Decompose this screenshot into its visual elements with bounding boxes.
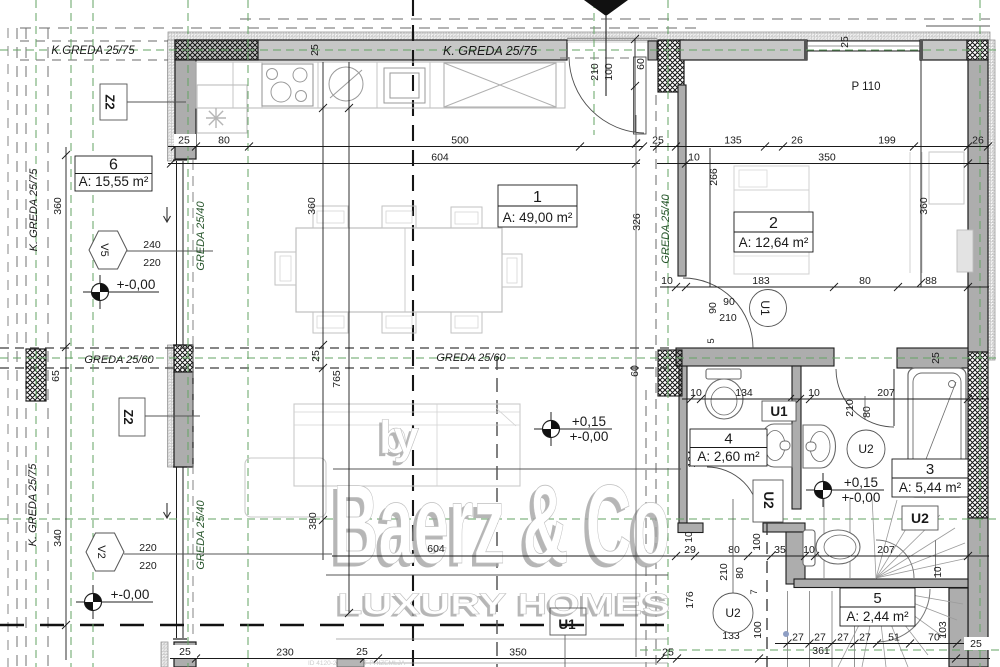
svg-text:266: 266 [708,168,720,186]
svg-text:350: 350 [818,152,836,164]
svg-text:134: 134 [735,387,753,399]
svg-text:LUXURY HOMES: LUXURY HOMES [337,588,670,621]
svg-text:26: 26 [791,135,803,147]
svg-text:10: 10 [688,152,700,164]
svg-text:2: 2 [769,215,778,232]
svg-text:60: 60 [629,365,641,377]
svg-text:U2: U2 [911,510,929,526]
svg-text:380: 380 [307,512,319,530]
svg-text:26: 26 [972,135,984,147]
svg-text:65: 65 [50,370,62,382]
svg-text:326: 326 [631,213,643,231]
svg-text:207: 207 [877,387,895,399]
svg-text:176: 176 [684,591,696,609]
svg-text:1: 1 [533,189,542,206]
svg-text:A: 2,60 m²: A: 2,60 m² [697,449,760,464]
svg-text:88: 88 [925,275,937,287]
svg-text:60: 60 [635,58,647,70]
svg-text:5: 5 [873,590,881,607]
svg-text:Z2: Z2 [121,409,136,424]
svg-text:80: 80 [728,544,740,556]
svg-text:207: 207 [877,544,895,556]
svg-text:U2: U2 [761,491,776,508]
svg-text:25: 25 [310,350,322,362]
svg-text:10: 10 [808,387,820,399]
svg-text:25: 25 [970,638,982,650]
svg-text:25: 25 [178,135,190,147]
svg-text:25: 25 [839,36,851,48]
svg-text:35: 35 [774,544,786,556]
svg-text:360: 360 [306,197,318,215]
svg-text:210: 210 [719,312,737,324]
svg-text:90: 90 [723,296,735,308]
svg-text:V5: V5 [98,243,110,256]
svg-text:135: 135 [724,135,742,147]
svg-text:K. GREDA 25/75: K. GREDA 25/75 [443,44,537,58]
svg-text:27: 27 [792,632,804,644]
svg-text:K. GREDA 25/75: K. GREDA 25/75 [28,168,40,252]
svg-text:604: 604 [431,152,449,164]
svg-text:A: 49,00 m²: A: 49,00 m² [503,210,573,225]
svg-text:+-0,00: +-0,00 [111,587,150,602]
svg-text:183: 183 [752,275,770,287]
svg-text:230: 230 [276,647,294,659]
svg-text:A: 2,44 m²: A: 2,44 m² [846,609,909,624]
svg-text:25: 25 [179,646,191,658]
svg-text:240: 240 [143,239,161,251]
svg-text:by: by [379,411,419,463]
svg-text:350: 350 [509,647,527,659]
svg-text:Z2: Z2 [103,94,118,109]
svg-text:+0,15: +0,15 [844,475,878,490]
svg-text:A: 15,55 m²: A: 15,55 m² [79,174,149,189]
svg-text:361: 361 [812,645,830,657]
svg-text:10: 10 [933,566,944,578]
svg-text:765: 765 [331,370,343,388]
svg-text:GREDA 25/40: GREDA 25/40 [660,193,672,263]
svg-text:25: 25 [356,646,368,658]
svg-text:6: 6 [109,157,118,174]
svg-text:U2: U2 [858,442,874,456]
svg-text:GREDA 25/60: GREDA 25/60 [436,352,506,364]
svg-text:340: 340 [52,529,64,547]
svg-text:80: 80 [861,406,873,418]
svg-text:25: 25 [652,135,664,147]
svg-text:210: 210 [844,399,856,417]
svg-text:80: 80 [218,135,230,147]
svg-text:U1: U1 [770,404,788,419]
svg-text:27: 27 [814,632,826,644]
svg-text:K.GREDA 25/75: K.GREDA 25/75 [51,45,135,57]
svg-text:K. GREDA 25/75: K. GREDA 25/75 [27,463,39,547]
svg-text:25: 25 [309,44,321,56]
svg-text:10: 10 [803,544,815,556]
svg-text:GREDA 25/40: GREDA 25/40 [195,200,207,270]
svg-text:10: 10 [661,275,673,287]
svg-text:220: 220 [143,257,161,269]
svg-text:27: 27 [859,632,871,644]
svg-text:A: 5,44 m²: A: 5,44 m² [899,480,962,495]
svg-text:A: 12,64 m²: A: 12,64 m² [739,235,809,250]
svg-text:U1: U1 [758,300,772,316]
svg-text:+-0,00: +-0,00 [117,277,156,292]
svg-text:+-0,00: +-0,00 [842,490,881,505]
svg-text:GREDA 25/60: GREDA 25/60 [84,354,154,366]
svg-text:360: 360 [52,197,64,215]
svg-text:100: 100 [751,533,763,551]
svg-text:+-0,00: +-0,00 [570,429,609,444]
svg-text:U1: U1 [558,617,576,632]
svg-text:80: 80 [859,275,871,287]
svg-text:360: 360 [918,197,930,215]
svg-text:604: 604 [427,543,445,555]
svg-text:25: 25 [930,352,942,364]
svg-text:10: 10 [684,531,695,543]
svg-text:80: 80 [734,567,746,579]
svg-text:100: 100 [752,621,764,639]
svg-text:4: 4 [724,431,732,448]
svg-text:27: 27 [837,632,849,644]
svg-text:199: 199 [878,135,896,147]
svg-text:3: 3 [926,461,934,478]
svg-text:500: 500 [451,135,469,147]
svg-text:+0,15: +0,15 [572,414,606,429]
svg-text:V2: V2 [95,545,107,558]
svg-text:210: 210 [718,563,730,581]
svg-text:U2: U2 [725,606,741,620]
svg-text:5: 5 [706,338,717,343]
svg-text:GREDA 25/40: GREDA 25/40 [195,499,207,569]
svg-text:25: 25 [662,647,674,659]
svg-text:Baerz & Co: Baerz & Co [333,462,670,587]
svg-text:220: 220 [139,542,157,554]
svg-text:210: 210 [589,63,601,81]
svg-text:51: 51 [888,632,900,644]
svg-text:90: 90 [707,302,719,314]
svg-text:10: 10 [690,387,702,399]
svg-text:103: 103 [937,621,949,639]
svg-text:220: 220 [139,560,157,572]
svg-text:29: 29 [684,544,696,556]
svg-text:100: 100 [603,63,615,81]
svg-text:P 110: P 110 [852,81,881,93]
svg-text:7: 7 [749,589,760,594]
